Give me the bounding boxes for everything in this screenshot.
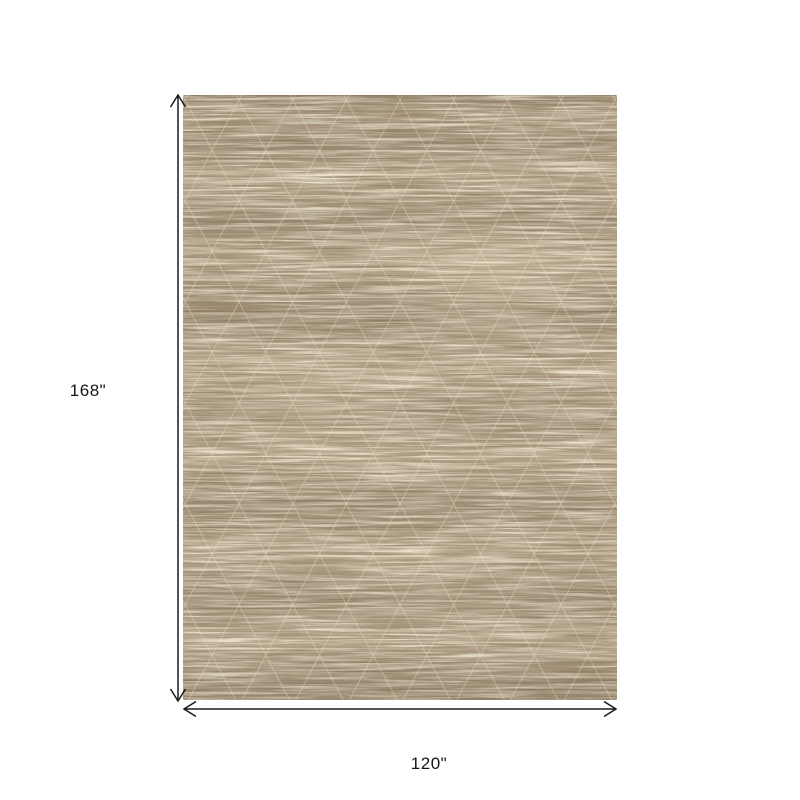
rug-image [183, 95, 617, 700]
width-dimension-label: 120" [381, 754, 477, 774]
height-dimension-label: 168" [40, 381, 136, 401]
width-arrow-icon [184, 702, 616, 717]
rug-diamond-lattice-pattern [183, 95, 617, 700]
dimension-diagram: 168" 120" [0, 0, 800, 800]
